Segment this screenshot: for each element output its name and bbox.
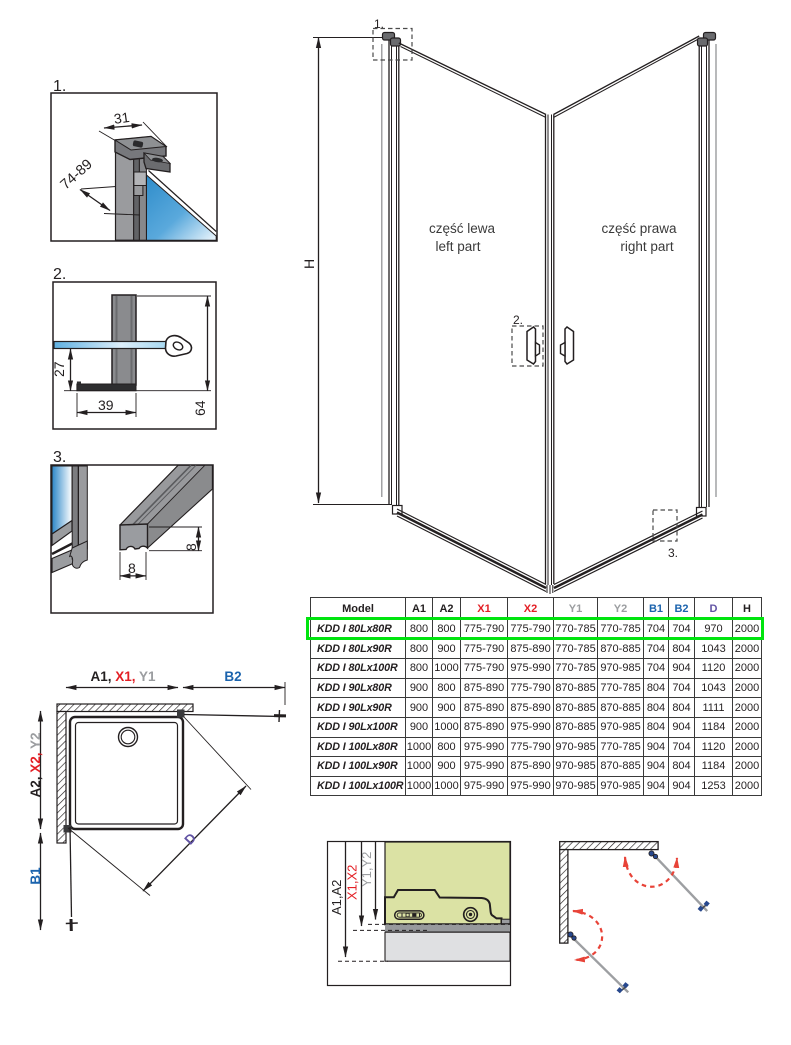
svg-text:D: D — [182, 830, 200, 848]
svg-text:right part: right part — [620, 239, 674, 254]
svg-text:8: 8 — [128, 560, 136, 576]
svg-text:left part: left part — [435, 239, 480, 254]
svg-text:A2, X2, Y2: A2, X2, Y2 — [28, 732, 43, 797]
svg-text:2.: 2. — [513, 313, 523, 327]
svg-text:64: 64 — [192, 400, 208, 416]
svg-text:B2: B2 — [224, 669, 241, 684]
svg-text:część lewa: część lewa — [429, 221, 496, 236]
svg-text:8: 8 — [183, 543, 199, 551]
svg-text:A1,A2: A1,A2 — [329, 880, 344, 915]
svg-text:31: 31 — [113, 109, 131, 127]
svg-text:3.: 3. — [53, 449, 66, 466]
svg-text:27: 27 — [51, 361, 67, 377]
svg-text:3.: 3. — [668, 546, 678, 560]
svg-text:B1: B1 — [28, 867, 43, 885]
svg-text:H: H — [301, 259, 317, 269]
svg-text:X1,X2: X1,X2 — [345, 865, 360, 900]
svg-text:2.: 2. — [53, 266, 66, 283]
svg-text:Y1,Y2: Y1,Y2 — [359, 852, 374, 887]
svg-text:część prawa: część prawa — [601, 221, 677, 236]
svg-text:39: 39 — [98, 397, 114, 413]
svg-text:A1, X1, Y1: A1, X1, Y1 — [90, 669, 156, 684]
